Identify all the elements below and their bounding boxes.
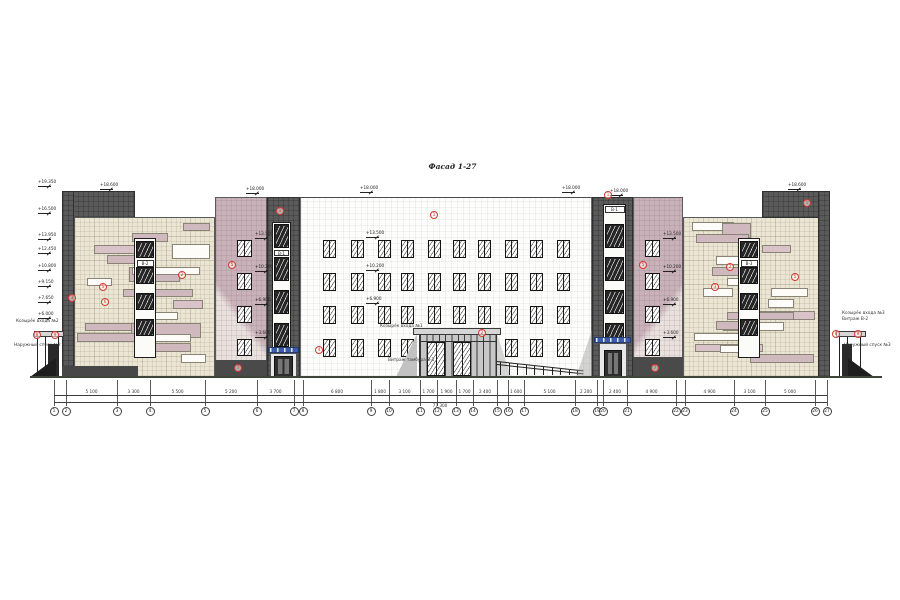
elevation-value: +18.000 (610, 188, 628, 193)
entrance-door-right (453, 342, 471, 376)
vitrage-glass (136, 241, 154, 258)
camo-patch (762, 245, 791, 254)
flag-tick (47, 251, 53, 257)
dimension-label: 1 800 (371, 389, 389, 394)
elevation-flag: +13.500 (663, 230, 677, 239)
axis-bubble: 17 (520, 407, 529, 416)
axis-bubble: 20 (599, 407, 608, 416)
elevation-flag: +6.900 (366, 295, 380, 304)
axis-bubble: 10 (385, 407, 394, 416)
elevation-flag: +13.500 (255, 230, 269, 239)
window (505, 306, 518, 324)
dimension-label: 2 400 (473, 389, 497, 394)
dimension-label: 1 700 (456, 389, 473, 394)
axis-bubble: 14 (469, 407, 478, 416)
elevation-value: +16.500 (38, 206, 56, 211)
material-callout: 2 (178, 271, 186, 279)
window (530, 339, 543, 357)
axis-bubble: 7 (290, 407, 299, 416)
annotation-note: Козырёк входа №1 (380, 325, 423, 330)
window (478, 273, 491, 291)
dimension-label: 6 800 (303, 389, 371, 394)
vitrage-glass (136, 293, 154, 310)
elevation-value: +6.900 (366, 296, 382, 301)
window (505, 273, 518, 291)
dimension-label: 2 400 (603, 389, 627, 394)
material-callout: 8 (33, 331, 41, 339)
material-callout: 7 (651, 364, 659, 372)
elevation-flag: +9.150 (38, 278, 52, 287)
axis-tick (676, 380, 677, 406)
tower-glass (274, 224, 289, 248)
material-callout: 6 (101, 298, 109, 306)
axis-bubble: 5 (201, 407, 210, 416)
tower-glass (605, 290, 624, 314)
elevation-flag: +18.600 (100, 181, 114, 190)
window (237, 273, 252, 290)
material-callout: 5 (99, 283, 107, 291)
elevation-flag: +18.600 (788, 181, 802, 190)
axis-bubble: 8 (299, 407, 308, 416)
flag-tick (369, 190, 375, 196)
elevation-value: +10.200 (366, 263, 384, 268)
window (453, 273, 466, 291)
flag-tick (47, 284, 53, 290)
axis-bubble: 18 (571, 407, 580, 416)
elevation-flag: +18.000 (610, 187, 624, 196)
elevation-flag: +16.500 (38, 205, 52, 214)
window (645, 339, 660, 356)
elevation-flag: +6.900 (663, 296, 677, 305)
elevation-value: +18.600 (100, 182, 118, 187)
axis-bubble: 2 (62, 407, 71, 416)
elevation-value: +13.500 (663, 231, 681, 236)
window (478, 306, 491, 324)
tower-glass (605, 224, 624, 248)
window (557, 240, 570, 258)
drawing-title: Фасад 1-27 (390, 162, 515, 171)
axis-bubble: 11 (416, 407, 425, 416)
tower-mark-label: В-1 (605, 206, 625, 213)
dimension-label: 3 100 (389, 389, 420, 394)
elevation-value: +13.500 (255, 231, 273, 236)
ramp-post (517, 364, 518, 376)
axis-bubble: 15 (493, 407, 502, 416)
vitrage-glass (740, 293, 758, 310)
window (428, 273, 441, 291)
window (530, 240, 543, 258)
axis-bubble: 9 (367, 407, 376, 416)
elevation-value: +9.150 (38, 279, 54, 284)
material-callout: 4 (315, 346, 323, 354)
material-callout: 1 (276, 207, 284, 215)
window (478, 240, 491, 258)
annotation-note: Витраж В-2 (842, 318, 868, 323)
left-edge-pylon (62, 191, 74, 377)
flag-tick (47, 300, 53, 306)
window (378, 339, 391, 357)
axis-bubble: 25 (761, 407, 770, 416)
elevation-value: +6.900 (663, 297, 679, 302)
camo-patch (183, 223, 210, 232)
axis-bubble: 22 (672, 407, 681, 416)
material-callout: 5 (228, 261, 236, 269)
elevation-value: +10.200 (255, 264, 273, 269)
elevation-flag: +19.350 (38, 178, 52, 187)
flag-tick (571, 190, 577, 196)
flag-tick (47, 237, 53, 243)
ramp-post (534, 366, 535, 376)
camo-patch (77, 333, 140, 342)
dimension-label: 3 300 (117, 389, 150, 394)
dimension-label: 1 600 (508, 389, 524, 394)
material-callout: 9 (854, 330, 862, 338)
window (351, 273, 364, 291)
ground-line (30, 376, 882, 378)
vitrage-glass (740, 319, 758, 336)
annotation-note: Козырёк входа №2 (16, 320, 59, 325)
axis-bubble: 24 (730, 407, 739, 416)
axis-bubble: 23 (681, 407, 690, 416)
facade-elevation-drawing: Фасад 1-27 В-2В-3В-1В-1+19.350+16.500+13… (0, 0, 900, 600)
window (351, 240, 364, 258)
total-dimension-label: 77 300 (405, 403, 475, 408)
elevation-value: +18.000 (562, 185, 580, 190)
elevation-flag: +18.000 (562, 184, 576, 193)
window (237, 240, 252, 257)
vitrage-glass (740, 241, 758, 258)
elevation-flag: +3.600 (663, 329, 677, 338)
flag-tick (47, 211, 53, 217)
window (323, 306, 336, 324)
dimension-label: 5 200 (205, 389, 257, 394)
vitrage-mark-label: В-3 (741, 260, 758, 267)
material-callout: 3 (711, 283, 719, 291)
elevation-value: +18.000 (360, 185, 378, 190)
ramp-post (543, 367, 544, 376)
dimension-line-1 (54, 395, 827, 396)
window (401, 339, 414, 357)
elevation-flag: +13.500 (366, 229, 380, 238)
material-callout: 8 (832, 330, 840, 338)
axis-tick (54, 380, 55, 406)
material-callout: 2 (478, 329, 486, 337)
axis-bubble: 6 (253, 407, 262, 416)
annotation-note: Наружный спуск №2 (14, 344, 61, 349)
side-entrance-post (839, 337, 840, 377)
window (323, 273, 336, 291)
elevation-value: +10.200 (663, 264, 681, 269)
tower-glass (274, 257, 289, 281)
tower-glass (274, 323, 289, 347)
material-callout: 3 (68, 294, 76, 302)
elevation-value: +13.950 (38, 232, 56, 237)
dimension-label: 5 100 (66, 389, 117, 394)
dimension-label: 2 200 (575, 389, 597, 394)
ramp-post (500, 362, 501, 376)
camo-patch (771, 288, 808, 297)
dimension-label: 4 900 (627, 389, 676, 394)
dimension-label: 3 100 (734, 389, 765, 394)
material-callout: 7 (234, 364, 242, 372)
right-edge-pylon (818, 191, 830, 377)
flag-tick (47, 268, 53, 274)
dimension-label: 1 700 (420, 389, 437, 394)
elevation-value: +6.900 (255, 297, 271, 302)
axis-tick (294, 380, 295, 406)
material-callout: 1 (803, 199, 811, 207)
elevation-value: +6.000 (38, 311, 54, 316)
annotation-note: Наружный спуск №3 (844, 344, 891, 349)
elevation-flag: +10.200 (255, 263, 269, 272)
elevation-flag: +10.200 (366, 262, 380, 271)
elevation-value: +3.600 (663, 330, 679, 335)
material-callout: 2 (726, 263, 734, 271)
dimension-label: 5 500 (150, 389, 205, 394)
elevation-value: +12.450 (38, 246, 56, 251)
axis-bubble: 1 (50, 407, 59, 416)
window (453, 240, 466, 258)
window (351, 306, 364, 324)
camo-patch (172, 244, 210, 259)
elevation-flag: +13.950 (38, 231, 52, 240)
elevation-value: +19.350 (38, 179, 56, 184)
entrance-canopy (413, 328, 501, 335)
elevation-value: +13.500 (366, 230, 384, 235)
window (428, 240, 441, 258)
elevation-flag: +18.000 (246, 185, 260, 194)
ramp-post (509, 363, 510, 376)
elevation-flag: +6.900 (255, 296, 269, 305)
window (401, 240, 414, 258)
window (557, 306, 570, 324)
window (237, 339, 252, 356)
ramp-post (560, 369, 561, 376)
elevation-flag: +6.000 (38, 310, 52, 319)
material-callout: 1 (430, 211, 438, 219)
left-tower-door (274, 356, 293, 377)
elevation-flag: +12.450 (38, 245, 52, 254)
material-callout: 1 (604, 191, 612, 199)
elevation-value: +18.000 (246, 186, 264, 191)
axis-bubble: 3 (113, 407, 122, 416)
elevation-flag: +7.650 (38, 294, 52, 303)
elevation-flag: +3.600 (255, 329, 269, 338)
axis-bubble: 16 (504, 407, 513, 416)
material-callout: 9 (51, 331, 59, 339)
window (505, 339, 518, 357)
dimension-label: 1 900 (437, 389, 456, 394)
window (323, 240, 336, 258)
axis-tick (497, 380, 498, 406)
camo-patch (181, 354, 206, 363)
tower-mark-label: В-1 (274, 250, 289, 257)
material-callout: 5 (791, 273, 799, 281)
right-tower-door (604, 350, 622, 377)
window (530, 306, 543, 324)
dimension-label: 3 700 (257, 389, 294, 394)
window (378, 240, 391, 258)
elevation-value: +18.600 (788, 182, 806, 187)
annotation-note: Витраж тамбура В-1 (388, 359, 434, 364)
ramp-post (552, 368, 553, 376)
window (323, 339, 336, 357)
window (378, 306, 391, 324)
window (237, 306, 252, 323)
flag-tick (47, 184, 53, 190)
window (428, 306, 441, 324)
vitrage-glass (136, 267, 154, 284)
vitrage-glass (136, 319, 154, 336)
elevation-value: +10.800 (38, 263, 56, 268)
window (530, 273, 543, 291)
ramp-post (526, 365, 527, 376)
elevation-flag: +10.800 (38, 262, 52, 271)
elevation-flag: +10.200 (663, 263, 677, 272)
elevation-value: +3.600 (255, 330, 271, 335)
axis-bubble: 21 (623, 407, 632, 416)
camo-patch (173, 300, 203, 309)
tower-glass (605, 257, 624, 281)
window (401, 273, 414, 291)
window (401, 306, 414, 324)
window (351, 339, 364, 357)
axis-tick (815, 380, 816, 406)
tower-glass (274, 290, 289, 314)
dimension-label: 5 000 (765, 389, 815, 394)
axis-bubble: 26 (811, 407, 820, 416)
axis-bubble: 27 (823, 407, 832, 416)
window (557, 273, 570, 291)
dimension-label: 5 100 (524, 389, 575, 394)
window (505, 240, 518, 258)
elevation-flag: +18.000 (360, 184, 374, 193)
axis-bubble: 13 (452, 407, 461, 416)
window (645, 273, 660, 290)
window (378, 273, 391, 291)
vitrage-mark-label: В-2 (137, 260, 154, 267)
axis-tick (597, 380, 598, 406)
material-callout: 5 (639, 261, 647, 269)
axis-bubble: 4 (146, 407, 155, 416)
camo-patch (727, 312, 794, 321)
elevation-value: +7.650 (38, 295, 54, 300)
window (645, 306, 660, 323)
camo-patch (768, 299, 794, 308)
window (453, 306, 466, 324)
axis-bubble: 12 (433, 407, 442, 416)
window (557, 339, 570, 357)
axis-tick (827, 380, 828, 406)
window (645, 240, 660, 257)
side-entrance-stair (30, 358, 56, 377)
vitrage-glass (740, 267, 758, 284)
dimension-label: 4 900 (685, 389, 734, 394)
